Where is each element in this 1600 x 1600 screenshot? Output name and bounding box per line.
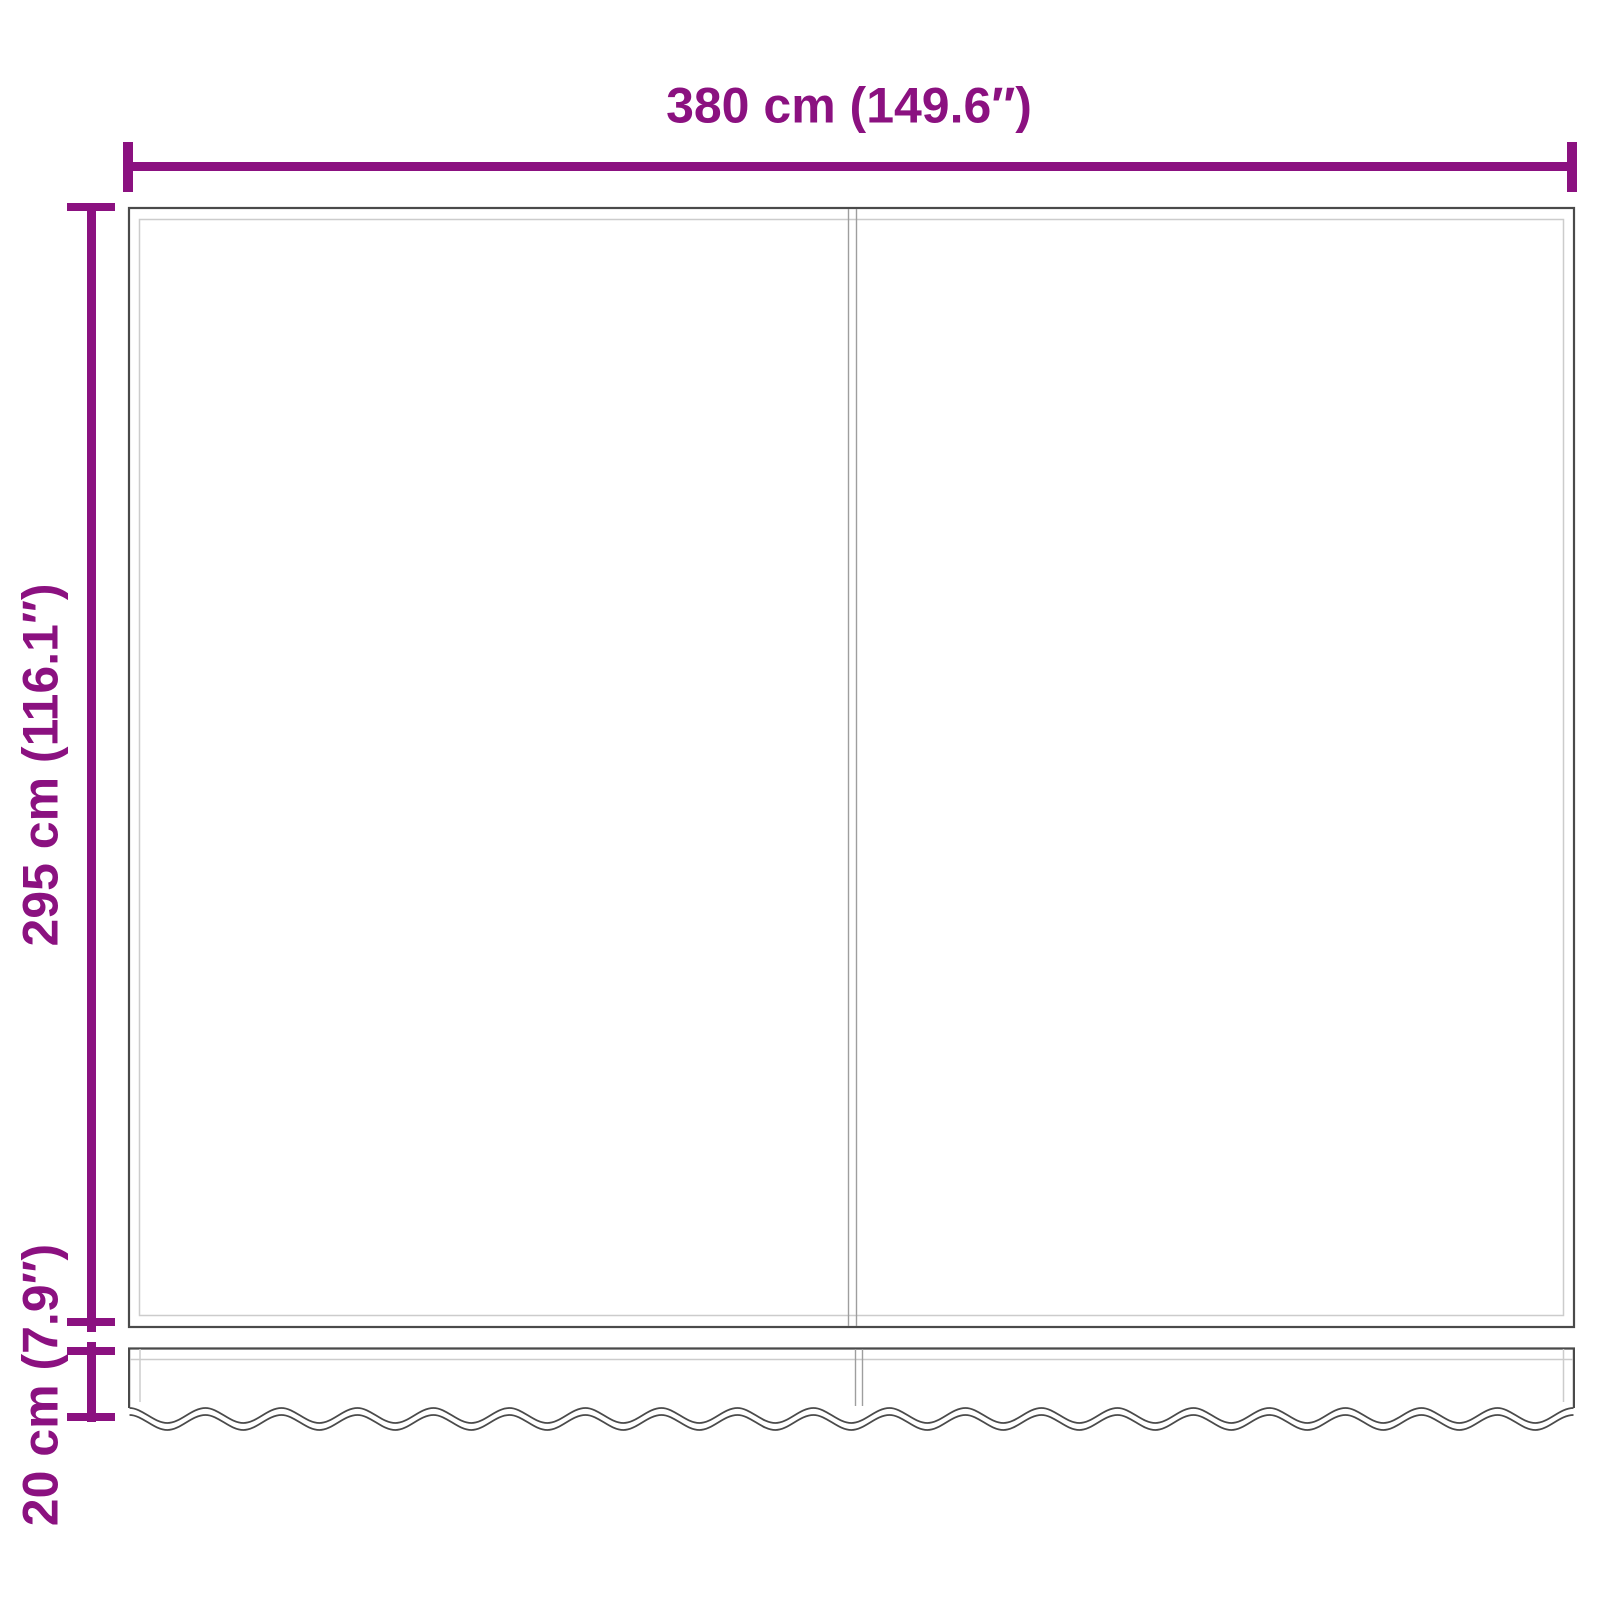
valance-outline (129, 1349, 1574, 1409)
height-dimension-label: 295 cm (116.1″) (14, 583, 69, 946)
fabric-panel-inner-hem (140, 220, 1564, 1316)
valance-height-dimension-tick-top (67, 1347, 115, 1355)
awning-fabric-drawing (0, 0, 1600, 1600)
height-dimension-tick-top (67, 203, 115, 211)
width-dimension-tick-left (123, 142, 133, 192)
height-dimension-line (87, 204, 96, 1332)
height-dimension-tick-bottom (67, 1318, 115, 1326)
width-dimension-tick-right (1567, 142, 1577, 192)
product-dimension-image: 380 cm (149.6″) 295 cm (116.1″) 20 cm (7… (0, 0, 1600, 1600)
width-dimension-line (128, 162, 1572, 171)
fabric-panel-outline (129, 208, 1574, 1327)
valance-height-dimension-tick-bottom (67, 1413, 115, 1421)
valance-scalloped-edge-outer (130, 1408, 1574, 1423)
width-dimension-label: 380 cm (149.6″) (666, 79, 1032, 134)
valance-height-dimension-label: 20 cm (7.9″) (14, 1244, 69, 1526)
